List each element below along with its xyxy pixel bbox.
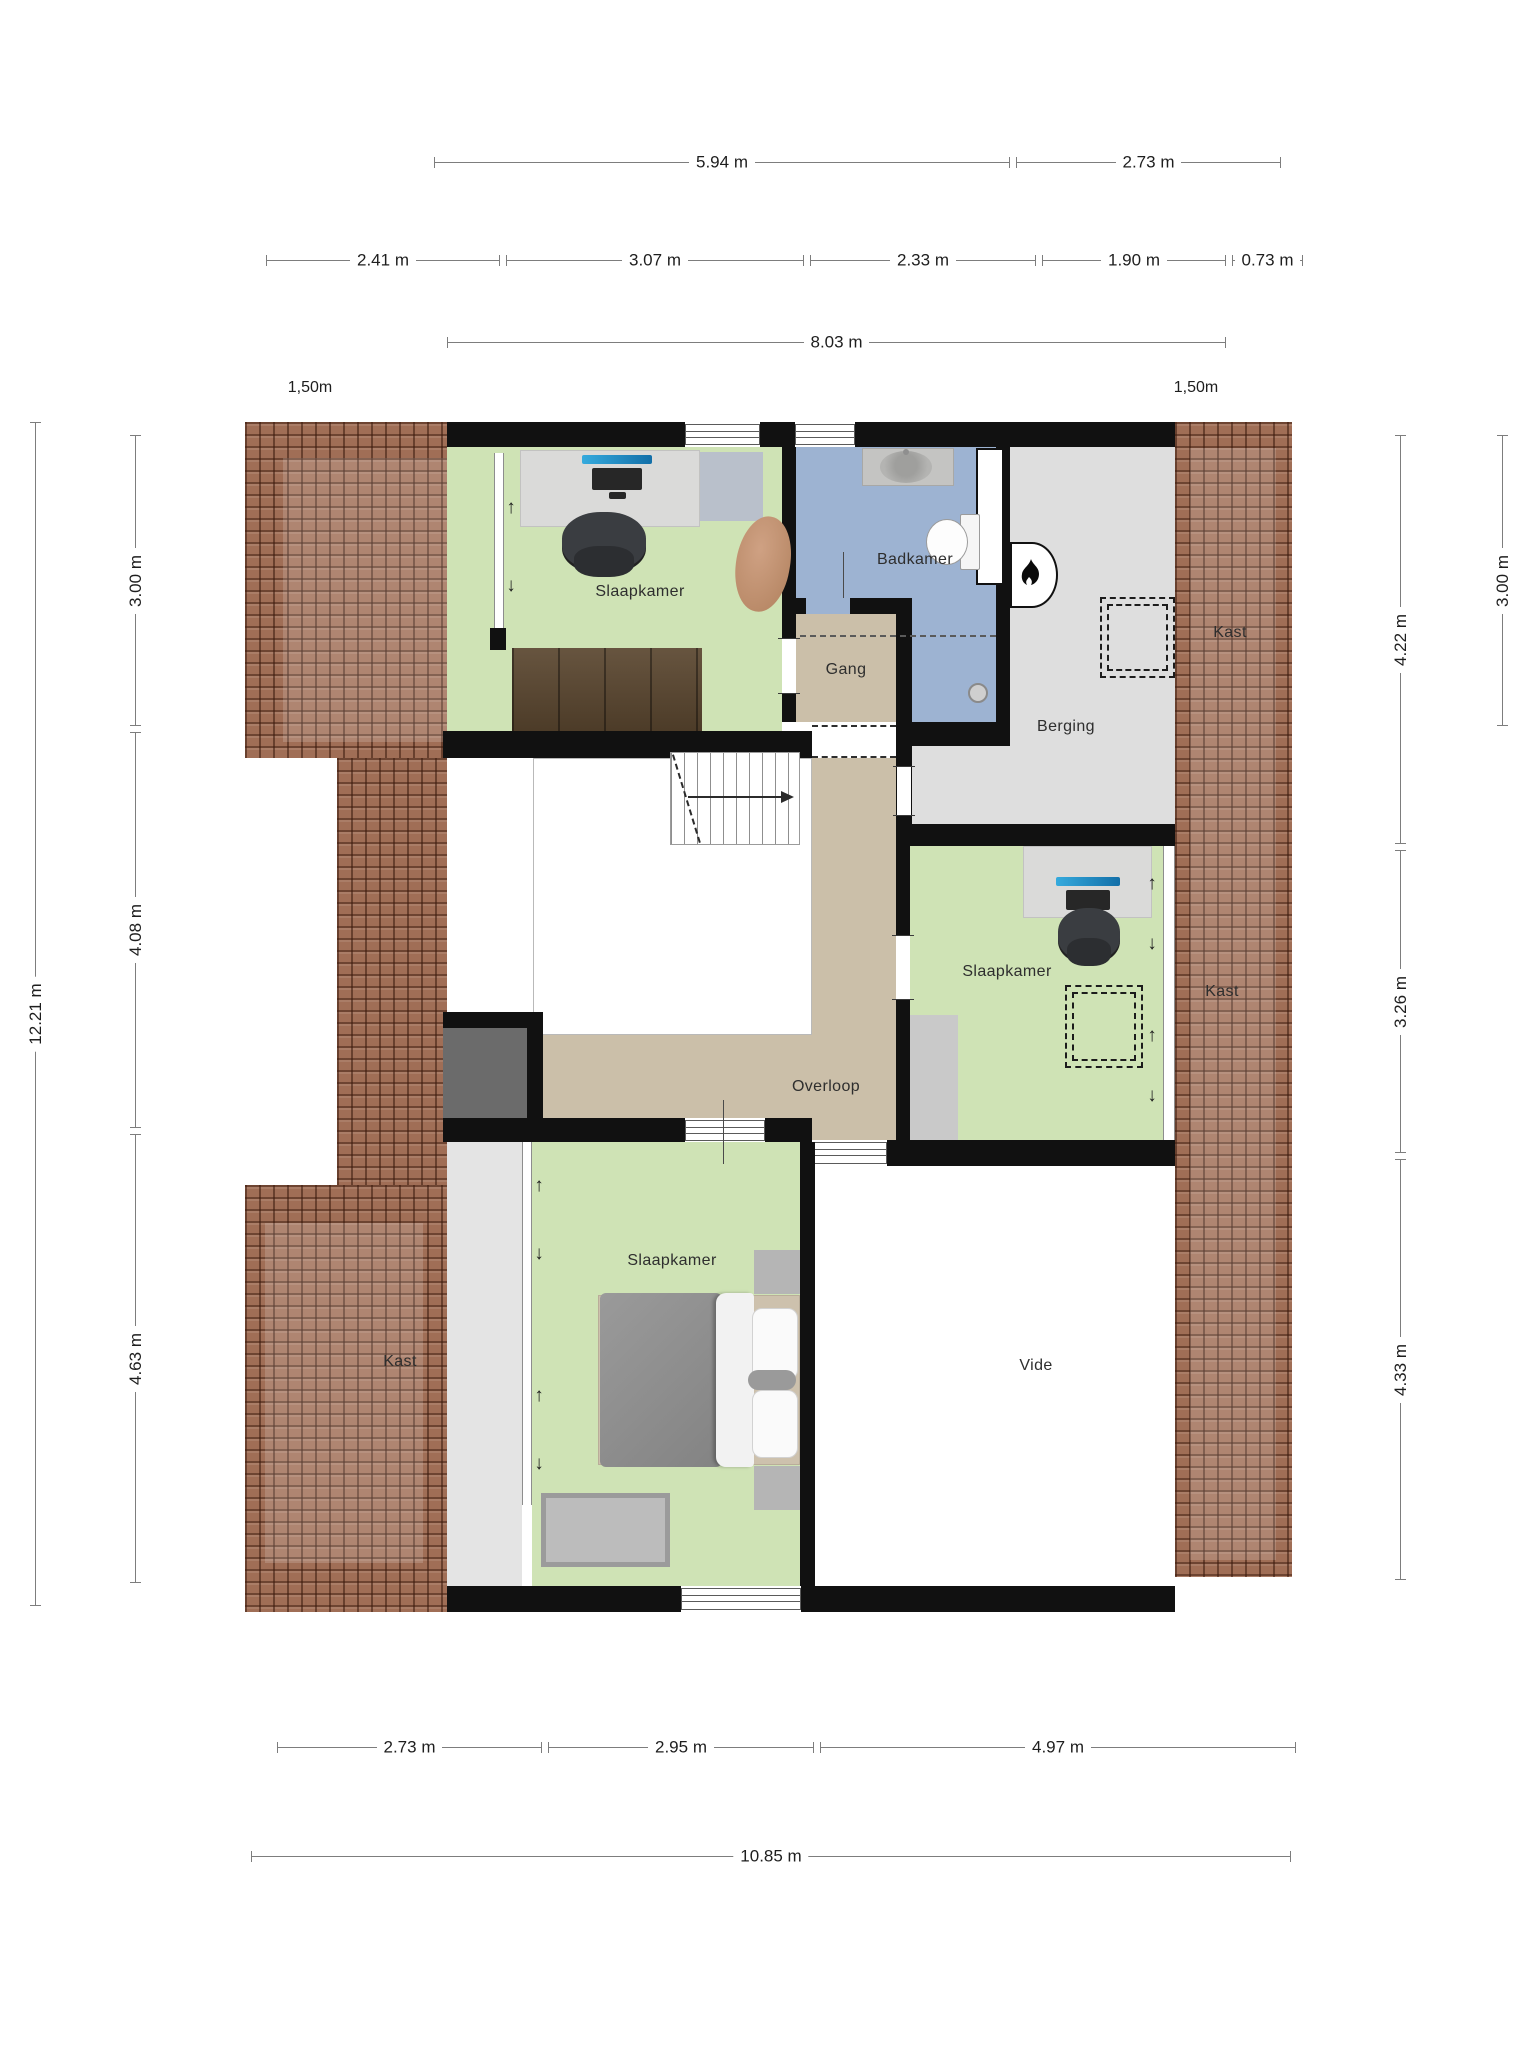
room-label-slaapkamer-tl: Slaapkamer bbox=[595, 583, 684, 601]
dimension-label: 0.73 m bbox=[1235, 251, 1301, 271]
roof-offset-label-right: 1,50m bbox=[1174, 379, 1218, 397]
slope-arrow-up-icon: ↑ bbox=[534, 1175, 544, 1197]
wall bbox=[447, 1586, 681, 1612]
bed-runner bbox=[748, 1370, 796, 1390]
dimension-line: 2.41 m bbox=[266, 260, 500, 261]
room-berging-lower bbox=[912, 746, 1175, 824]
door-jamb bbox=[778, 693, 800, 694]
dimension-label: 3.07 m bbox=[622, 251, 688, 271]
dimension-line: 3.26 m bbox=[1400, 850, 1401, 1153]
skylight-dashed bbox=[1100, 597, 1175, 678]
dimension-line: 10.85 m bbox=[251, 1856, 1291, 1857]
dimension-line: 8.03 m bbox=[447, 342, 1226, 343]
room-label-slaapkamer-mid: Slaapkamer bbox=[962, 963, 1051, 981]
slope-arrow-down-icon: ↓ bbox=[1147, 933, 1157, 955]
dimension-label: 1.90 m bbox=[1101, 251, 1167, 271]
dimension-line: 3.00 m bbox=[1502, 435, 1503, 726]
dimension-line: 2.33 m bbox=[810, 260, 1036, 261]
dimension-line: 3.00 m bbox=[135, 435, 136, 726]
wall bbox=[447, 422, 685, 447]
dimension-label: 3.00 m bbox=[126, 548, 146, 614]
wall bbox=[443, 1118, 685, 1142]
wall bbox=[855, 422, 1175, 447]
sink-basin bbox=[880, 451, 932, 483]
wall bbox=[912, 722, 1010, 746]
dimension-line: 4.97 m bbox=[820, 1747, 1296, 1748]
roof-offset-label-left: 1,50m bbox=[288, 379, 332, 397]
wall bbox=[801, 1586, 1175, 1612]
kast-bottomleft-floor bbox=[447, 1142, 522, 1586]
slope-arrow-up-icon: ↑ bbox=[1147, 873, 1157, 895]
knee-wall-line bbox=[522, 1142, 532, 1505]
wall bbox=[782, 694, 796, 722]
room-vide bbox=[815, 1166, 1175, 1586]
skylight-dashed bbox=[1065, 985, 1143, 1068]
slope-arrow-up-icon: ↑ bbox=[506, 497, 516, 519]
wall bbox=[887, 1140, 1175, 1166]
dimension-line: 3.07 m bbox=[506, 260, 804, 261]
pillow bbox=[752, 1390, 798, 1458]
dimension-line: 2.73 m bbox=[277, 1747, 542, 1748]
dimension-label: 3.26 m bbox=[1391, 969, 1411, 1035]
room-label-kast-top-right: Kast bbox=[1213, 624, 1247, 642]
monitor-body bbox=[592, 468, 642, 490]
monitor-body bbox=[1066, 890, 1110, 910]
slope-arrow-up-icon: ↑ bbox=[1147, 1025, 1157, 1047]
room-label-badkamer: Badkamer bbox=[877, 551, 953, 569]
headboard-bottom bbox=[754, 1466, 800, 1510]
stair-direction-arrow bbox=[688, 796, 782, 798]
room-label-slaapkamer-bottom: Slaapkamer bbox=[627, 1252, 716, 1270]
gray-rug bbox=[700, 452, 763, 521]
wall bbox=[896, 598, 912, 758]
wall bbox=[800, 1142, 815, 1586]
room-label-vide: Vide bbox=[1019, 1357, 1052, 1375]
dimension-line: 2.73 m bbox=[1016, 162, 1281, 163]
sloped-ceiling-line bbox=[800, 635, 996, 637]
dimension-line: 1.90 m bbox=[1042, 260, 1226, 261]
door-leaf bbox=[843, 552, 844, 598]
door-jamb bbox=[892, 999, 914, 1000]
dimension-label: 12.21 m bbox=[26, 976, 46, 1051]
dimension-line: 4.08 m bbox=[135, 732, 136, 1128]
monitor-stand bbox=[609, 492, 626, 499]
shaft-dark-square bbox=[443, 1028, 527, 1127]
room-label-overloop: Overloop bbox=[792, 1078, 860, 1096]
wall bbox=[850, 598, 902, 614]
knee-wall-line bbox=[1163, 846, 1175, 1140]
dimension-label: 4.97 m bbox=[1025, 1738, 1091, 1758]
bed-blanket bbox=[600, 1293, 722, 1467]
flame-icon bbox=[1018, 558, 1044, 588]
dimension-label: 4.63 m bbox=[126, 1326, 146, 1392]
dimension-label: 4.33 m bbox=[1391, 1337, 1411, 1403]
dimension-line: 2.95 m bbox=[548, 1747, 814, 1748]
dimension-line: 0.73 m bbox=[1232, 260, 1303, 261]
door-opening bbox=[897, 766, 911, 816]
wall bbox=[896, 1000, 910, 1140]
wall bbox=[760, 422, 795, 447]
dimension-label: 8.03 m bbox=[804, 333, 870, 353]
dimension-label: 5.94 m bbox=[689, 153, 755, 173]
window bbox=[685, 424, 760, 445]
gray-cabinet bbox=[910, 1015, 958, 1140]
door-jamb bbox=[893, 766, 915, 767]
room-label-gang: Gang bbox=[826, 661, 867, 679]
monitor-icon bbox=[1056, 877, 1120, 886]
dimension-line: 4.63 m bbox=[135, 1134, 136, 1583]
floorplan-canvas: ↑ ↓ ↑ ↓ ↑ ↓ ↑ ↓ ↑ ↓ Slaapkamer Badkamer … bbox=[0, 0, 1536, 2048]
bathroom-niche bbox=[976, 448, 1004, 585]
window bbox=[812, 1142, 887, 1164]
overloop-lower bbox=[533, 1035, 896, 1118]
dimension-line: 12.21 m bbox=[35, 422, 36, 1606]
floor-drain-icon bbox=[968, 683, 988, 703]
door-jamb bbox=[778, 638, 800, 639]
dimension-label: 4.22 m bbox=[1391, 607, 1411, 673]
window bbox=[795, 424, 855, 445]
door-jamb bbox=[892, 935, 914, 936]
room-label-kast-bottom-left: Kast bbox=[383, 1353, 417, 1371]
wall bbox=[896, 824, 1175, 846]
wall bbox=[896, 846, 910, 935]
sink-tap bbox=[903, 449, 909, 455]
dimension-label: 2.41 m bbox=[350, 251, 416, 271]
dimension-label: 2.73 m bbox=[1116, 153, 1182, 173]
roof-highlight bbox=[1190, 448, 1276, 1560]
slope-arrow-down-icon: ↓ bbox=[506, 575, 516, 597]
dimension-label: 3.00 m bbox=[1493, 548, 1513, 614]
slope-arrow-down-icon: ↓ bbox=[1147, 1085, 1157, 1107]
headboard-top bbox=[754, 1250, 800, 1294]
room-label-berging: Berging bbox=[1037, 718, 1095, 736]
slope-arrow-down-icon: ↓ bbox=[534, 1453, 544, 1475]
bedroom-rug bbox=[541, 1493, 670, 1567]
dimension-label: 2.73 m bbox=[377, 1738, 443, 1758]
dimension-line: 4.22 m bbox=[1400, 435, 1401, 844]
dimension-line: 4.33 m bbox=[1400, 1159, 1401, 1580]
monitor-icon bbox=[582, 455, 652, 464]
dimension-label: 2.33 m bbox=[890, 251, 956, 271]
slope-arrow-down-icon: ↓ bbox=[534, 1243, 544, 1265]
dimension-label: 2.95 m bbox=[648, 1738, 714, 1758]
knee-wall-stub bbox=[490, 628, 506, 650]
office-chair bbox=[562, 512, 646, 570]
window bbox=[685, 1120, 765, 1141]
wooden-dresser bbox=[512, 648, 702, 731]
knee-wall-line bbox=[494, 453, 504, 628]
dimension-label: 10.85 m bbox=[733, 1847, 808, 1867]
roof-highlight bbox=[265, 1223, 423, 1563]
dimension-line: 5.94 m bbox=[434, 162, 1010, 163]
slope-arrow-up-icon: ↑ bbox=[534, 1385, 544, 1407]
roof-highlight bbox=[283, 458, 447, 742]
dimension-label: 4.08 m bbox=[126, 897, 146, 963]
window bbox=[681, 1588, 801, 1610]
wall bbox=[527, 1012, 543, 1118]
opening-dashed bbox=[812, 725, 896, 758]
window-center-line bbox=[723, 1100, 724, 1164]
room-label-kast-mid-right: Kast bbox=[1205, 983, 1239, 1001]
wall bbox=[765, 1118, 812, 1142]
wall bbox=[796, 598, 806, 614]
office-chair bbox=[1058, 908, 1120, 960]
door-jamb bbox=[893, 815, 915, 816]
